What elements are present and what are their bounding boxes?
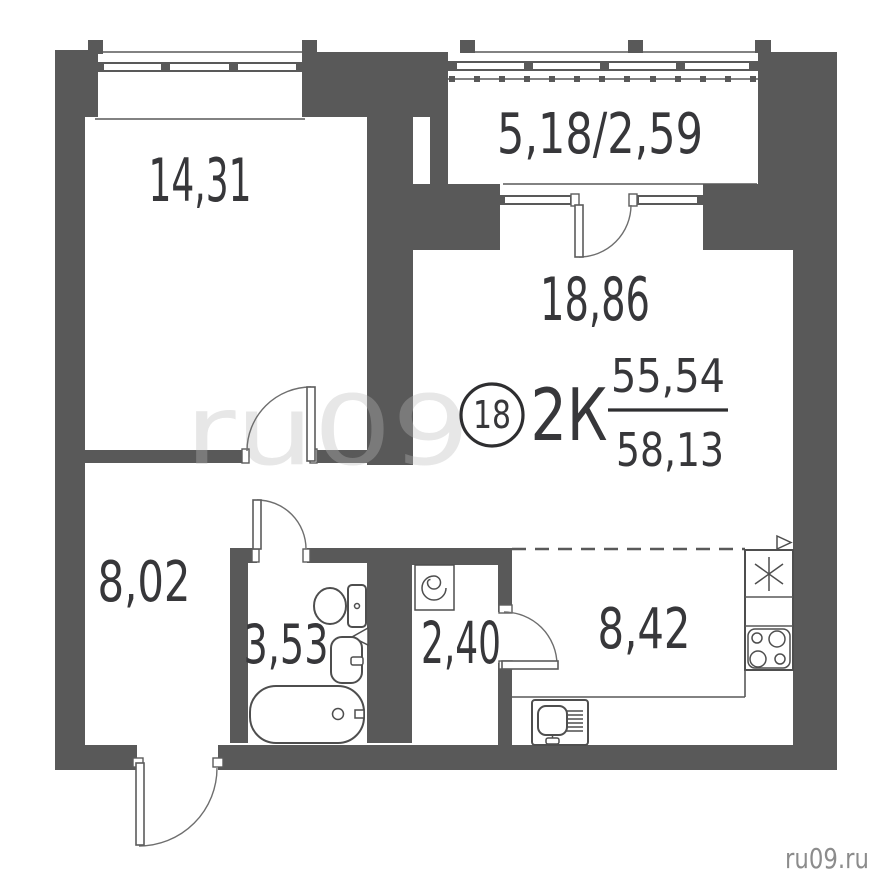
apartment-total-area: 58,13 <box>616 423 724 477</box>
wardrobe-area-label: 2,40 <box>421 609 501 677</box>
apartment-living-area: 55,54 <box>611 349 725 403</box>
hallway-area-label: 8,02 <box>98 550 191 615</box>
living-area-label: 18,86 <box>540 265 650 335</box>
kitchen-area-label: 8,42 <box>598 597 691 662</box>
bathroom-area-label: 3,53 <box>244 613 329 676</box>
bedroom-area-label: 14,31 <box>149 146 252 216</box>
watermark-center-over: ru09 <box>185 375 470 487</box>
washbasin-icon <box>331 637 363 683</box>
stove-icon <box>748 629 790 668</box>
bathroom-door <box>252 500 310 562</box>
balcony-door <box>571 194 637 257</box>
apartment-type: 2К <box>531 373 608 457</box>
balcony-area-label: 5,18/2,59 <box>497 102 703 167</box>
entrance-door <box>133 758 223 846</box>
balcony-glazing <box>448 52 758 70</box>
vent-triangle-icon <box>777 536 791 549</box>
floor-plan-drawing: ru09 ru09 <box>0 0 885 885</box>
kitchen-door <box>499 605 558 669</box>
bedroom-window <box>95 52 305 119</box>
balcony-railing <box>448 76 758 82</box>
bathtub-icon <box>250 686 364 743</box>
washing-machine-icon <box>415 565 454 610</box>
apartment-number: 18 <box>473 393 511 437</box>
floor-plan: ru09 ru09 <box>0 0 885 885</box>
kitchen-sink-icon <box>532 700 588 745</box>
kitchen-counter <box>512 670 745 697</box>
apartment-info: 18 2К 55,54 58,13 <box>461 349 728 477</box>
watermark-site: ru09.ru <box>785 842 869 875</box>
